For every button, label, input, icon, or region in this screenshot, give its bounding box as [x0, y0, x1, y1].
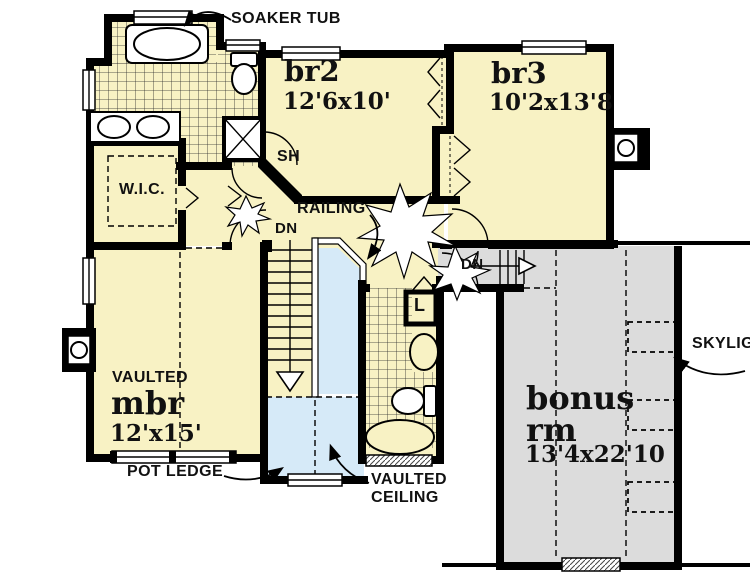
linen-label: L — [414, 296, 425, 314]
pot-ledge-label: POT LEDGE — [127, 464, 223, 480]
window-pot-ledge — [110, 451, 236, 463]
floor-plan: SOAKER TUB br2 12'6x10' br3 10'2x13'8 SH… — [0, 0, 750, 583]
window-toilet-nook — [226, 40, 260, 51]
railing-label: RAILING — [297, 201, 366, 217]
br3-dims: 10'2x13'8 — [489, 91, 613, 114]
soaker-tub-label: SOAKER TUB — [231, 11, 341, 27]
open-to-below-fill — [318, 248, 360, 394]
mbr-name: mbr — [111, 387, 184, 419]
bathtub — [366, 420, 434, 454]
toilet-bowl — [392, 388, 424, 414]
window-br3 — [522, 41, 586, 54]
br3-name: br3 — [491, 59, 547, 88]
mbr-dims: 12'x15' — [110, 422, 202, 445]
vaulted-ceiling-fill — [264, 397, 364, 480]
toilet-bowl — [232, 64, 256, 94]
bonus-name-line1: bonus — [526, 382, 634, 414]
down-label-main: DN — [275, 221, 297, 236]
soaker-tub-basin — [134, 28, 200, 60]
window-tub — [134, 11, 192, 24]
shower-label: SH — [277, 149, 300, 165]
window-bath-left — [83, 70, 95, 110]
window-vaulted — [288, 474, 342, 486]
bath-sink — [410, 334, 438, 370]
br2-dims: 12'6x10' — [283, 90, 391, 113]
toilet-tank — [424, 386, 436, 416]
vanity-sink — [137, 116, 169, 138]
window-mbr-left — [83, 258, 95, 304]
vanity-sink — [98, 116, 130, 138]
skylight-arrow — [676, 359, 745, 374]
vaulted-ceiling-label-line2: CEILING — [371, 490, 439, 506]
window-main-bath — [366, 455, 432, 466]
wic-label: W.I.C. — [119, 182, 165, 198]
window-bonus — [562, 558, 620, 571]
vaulted-ceiling-label-line1: VAULTED — [371, 472, 447, 488]
shower-stall — [224, 118, 262, 160]
skylight-label: SKYLIG — [692, 336, 750, 352]
down-label-bonus: DN — [461, 257, 483, 272]
br2-name: br2 — [284, 57, 340, 86]
bonus-dims: 13'4x22'10 — [525, 443, 665, 466]
